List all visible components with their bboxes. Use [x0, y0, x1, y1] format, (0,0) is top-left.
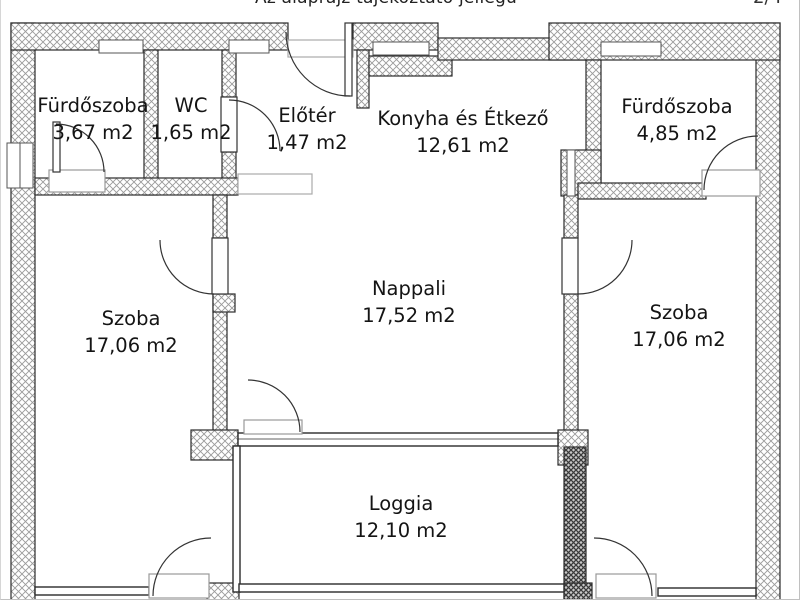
wall-divider-right-upper — [564, 195, 578, 238]
wall-bottom-block-right — [564, 583, 592, 600]
window-transom-entry — [229, 40, 269, 53]
room-label-wc: WC 1,65 m2 — [150, 92, 231, 146]
room-area: 17,06 m2 — [632, 326, 725, 353]
door-leaf-room-left — [212, 238, 228, 294]
room-name: Fürdőszoba — [621, 93, 732, 120]
room-label-living-room: Nappali 17,52 m2 — [362, 275, 455, 329]
room-name: Nappali — [362, 275, 455, 302]
threshold-bath-left — [49, 170, 105, 192]
room-name: Loggia — [354, 490, 447, 517]
room-name: Fürdőszoba — [37, 92, 148, 119]
room-label-entry: Előtér 1,47 m2 — [266, 102, 347, 156]
room-area: 17,52 m2 — [362, 302, 455, 329]
door-leaf-room-right — [562, 238, 578, 294]
floorplan-page: Az alaprajz tájékoztató jellegű 2/4 — [0, 0, 800, 600]
window-transom-kitchen — [373, 42, 429, 55]
wall-top-right — [549, 23, 780, 60]
glass-wall-loggia-bottom — [239, 584, 564, 592]
wall-divider-left-jog — [213, 294, 235, 312]
wall-wc-right-upper — [222, 50, 236, 97]
door-leaf-entrance — [345, 23, 352, 96]
room-name: Előtér — [266, 102, 347, 129]
room-area: 3,67 m2 — [37, 119, 148, 146]
door-arc-room-left — [160, 240, 214, 294]
wall-loggia-corner-left — [191, 430, 238, 460]
wall-divider-left-upper — [213, 195, 227, 238]
window-slit-kitchen-stub — [567, 150, 575, 196]
room-label-loggia: Loggia 12,10 m2 — [354, 490, 447, 544]
room-area: 17,06 m2 — [84, 332, 177, 359]
threshold-entrance — [288, 40, 353, 57]
glass-wall-room-right-bottom — [658, 588, 756, 596]
room-label-room-right: Szoba 17,06 m2 — [632, 299, 725, 353]
room-label-bathroom-right: Fürdőszoba 4,85 m2 — [621, 93, 732, 147]
threshold-room-right-bottom — [596, 574, 656, 598]
wall-under-bath-right — [578, 183, 706, 199]
glass-wall-loggia-left — [233, 446, 240, 592]
window-transom-bath-right — [601, 42, 661, 56]
glass-wall-room-left-bottom — [35, 587, 149, 595]
wall-loggia-right — [564, 447, 586, 600]
door-arc-room-right — [578, 240, 632, 294]
room-label-room-left: Szoba 17,06 m2 — [84, 305, 177, 359]
window-transom-bath-left — [99, 40, 143, 53]
room-name: Szoba — [84, 305, 177, 332]
threshold-entry-living — [238, 174, 312, 194]
room-area: 12,61 m2 — [377, 132, 548, 159]
room-name: Konyha és Étkező — [377, 105, 548, 132]
threshold-bath-right — [702, 170, 760, 196]
room-label-kitchen-dining: Konyha és Étkező 12,61 m2 — [377, 105, 548, 159]
wall-right-exterior — [756, 23, 780, 600]
walls-dark — [564, 447, 592, 600]
wall-entry-right — [357, 50, 369, 108]
wall-left-exterior — [11, 23, 35, 600]
room-name: Szoba — [632, 299, 725, 326]
room-area: 12,10 m2 — [354, 517, 447, 544]
room-area: 1,47 m2 — [266, 129, 347, 156]
threshold-living-loggia — [244, 420, 302, 434]
room-area: 4,85 m2 — [621, 120, 732, 147]
wall-divider-left-lower — [213, 294, 227, 432]
room-label-bathroom-left: Fürdőszoba 3,67 m2 — [37, 92, 148, 146]
glass-wall-loggia-top — [238, 433, 558, 446]
room-area: 1,65 m2 — [150, 119, 231, 146]
room-name: WC — [150, 92, 231, 119]
threshold-room-left-bottom — [149, 574, 209, 598]
